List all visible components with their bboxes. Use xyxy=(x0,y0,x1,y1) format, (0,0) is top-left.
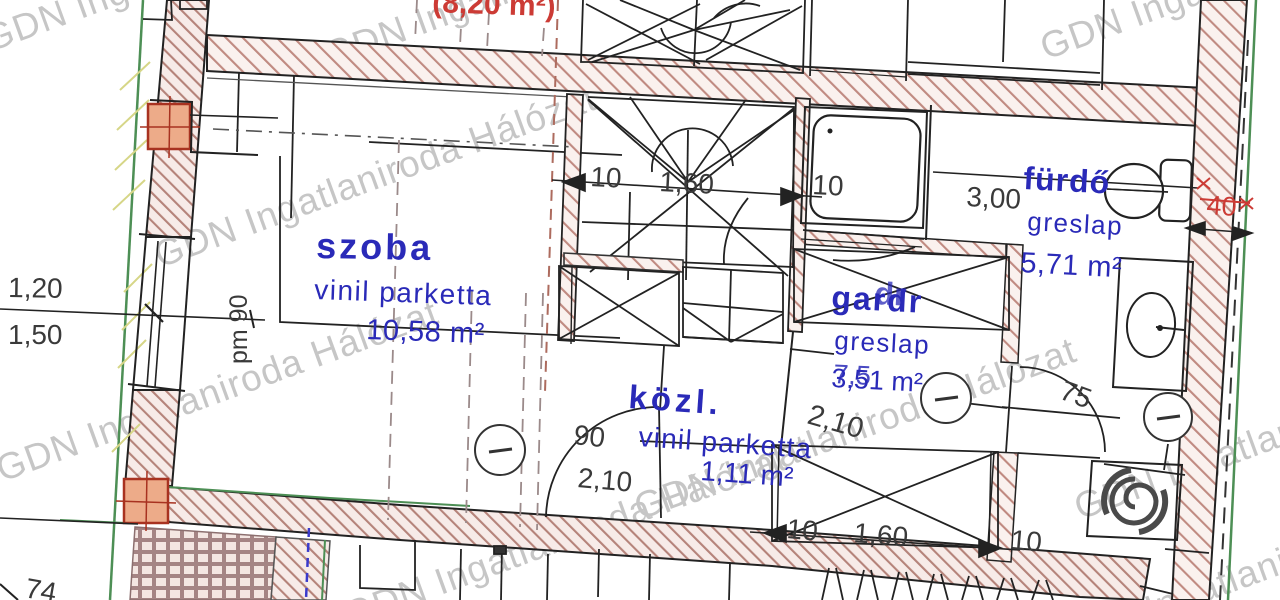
svg-text:40: 40 xyxy=(1206,190,1238,222)
svg-text:74: 74 xyxy=(23,572,59,600)
svg-text:greslap: greslap xyxy=(834,325,931,360)
svg-text:1,60: 1,60 xyxy=(852,517,909,553)
svg-text:10: 10 xyxy=(812,169,845,202)
svg-text:10,58 m²: 10,58 m² xyxy=(366,314,485,350)
svg-text:7,5: 7,5 xyxy=(833,359,872,391)
svg-text:pm 90: pm 90 xyxy=(225,295,253,364)
svg-text:vinil parketta: vinil parketta xyxy=(314,274,493,311)
svg-text:fürdő: fürdő xyxy=(1023,160,1112,200)
svg-text:3,00: 3,00 xyxy=(966,181,1022,215)
svg-text:1,50: 1,50 xyxy=(8,319,63,350)
svg-text:10: 10 xyxy=(785,513,819,547)
svg-text:5,71 m²: 5,71 m² xyxy=(1020,247,1123,284)
svg-text:10: 10 xyxy=(1009,524,1043,558)
svg-text:90: 90 xyxy=(572,419,606,453)
svg-text:dr: dr xyxy=(874,275,908,313)
svg-text:1,60: 1,60 xyxy=(659,166,715,200)
svg-text:10: 10 xyxy=(590,161,623,194)
svg-text:1,11 m²: 1,11 m² xyxy=(700,455,795,492)
svg-text:2,10: 2,10 xyxy=(576,462,633,498)
svg-text:közl.: közl. xyxy=(628,378,724,421)
svg-text:1,20: 1,20 xyxy=(8,272,63,304)
svg-text:szoba: szoba xyxy=(316,225,434,268)
svg-text:greslap: greslap xyxy=(1027,206,1124,241)
